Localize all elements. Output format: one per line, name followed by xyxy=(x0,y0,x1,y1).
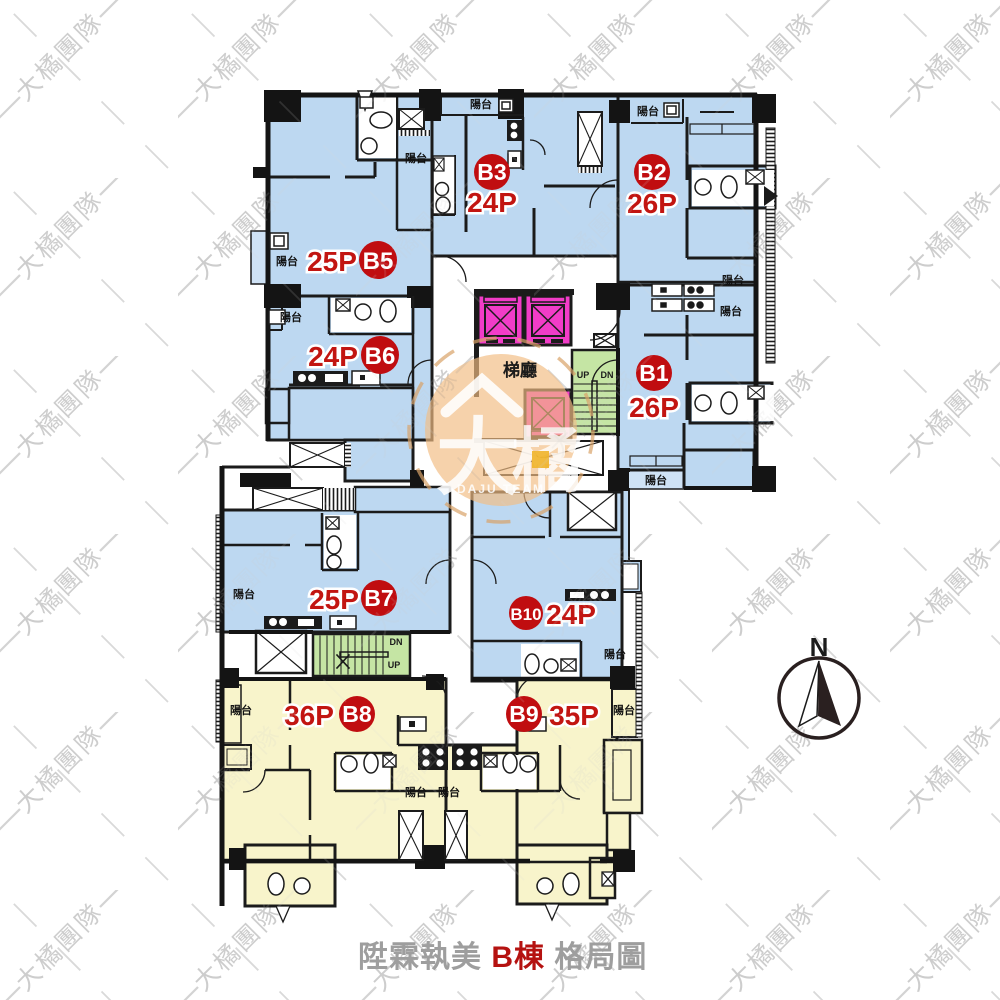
svg-text:陞霖執美 B棟 格局圖: 陞霖執美 B棟 格局圖 xyxy=(358,940,647,974)
svg-text:N: N xyxy=(810,632,829,662)
